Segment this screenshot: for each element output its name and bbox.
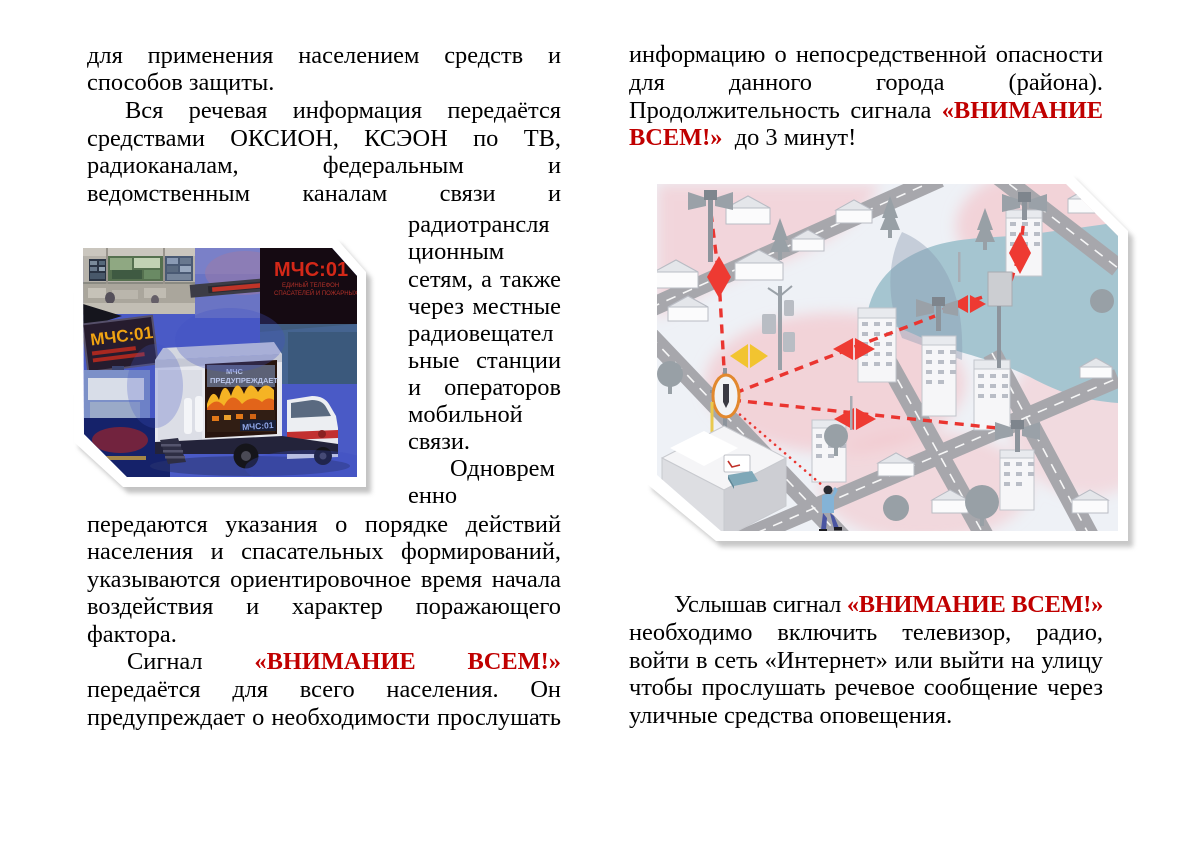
svg-text:ПРЕДУПРЕЖДАЕТ: ПРЕДУПРЕЖДАЕТ [210,376,278,385]
svg-text:СПАСАТЕЛЕЙ И ПОЖАРНЫХ: СПАСАТЕЛЕЙ И ПОЖАРНЫХ [274,289,358,297]
svg-text:МЧС:01: МЧС:01 [274,259,348,281]
svg-text:ЕДИНЫЙ ТЕЛЕФОН: ЕДИНЫЙ ТЕЛЕФОН [282,281,339,289]
